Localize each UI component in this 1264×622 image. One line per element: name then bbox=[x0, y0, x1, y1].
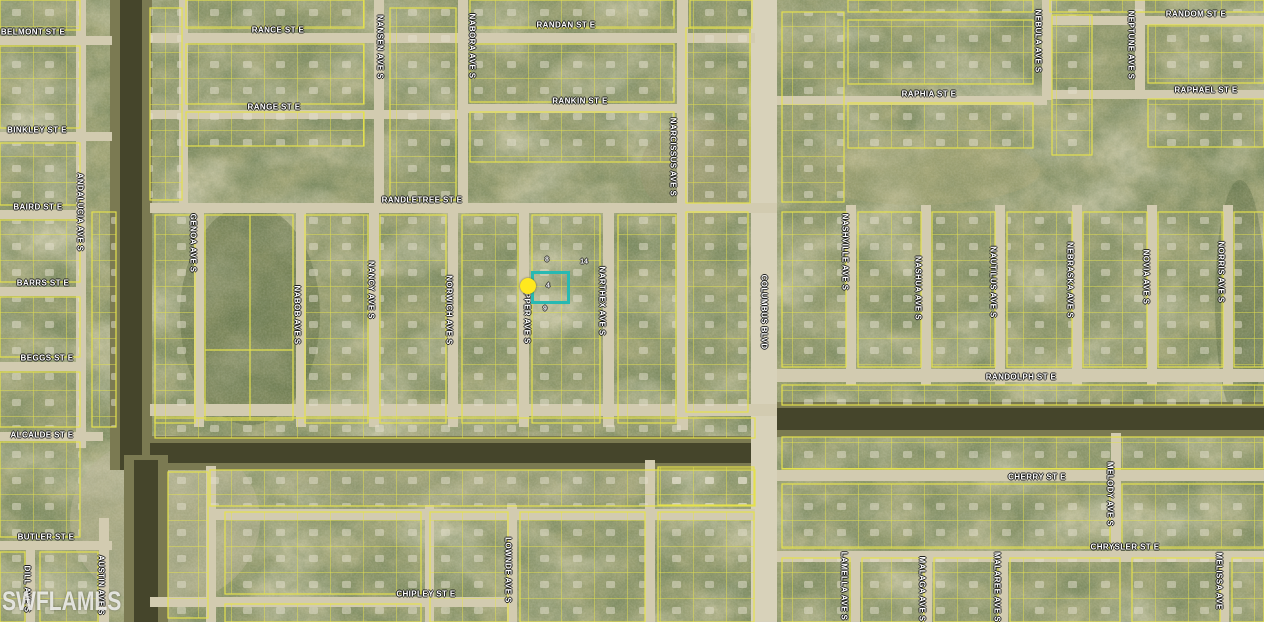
aerial-imagery bbox=[0, 0, 1264, 622]
subject-parcel-marker[interactable] bbox=[520, 278, 536, 294]
map-canvas[interactable]: BELMONT ST ERANCE ST ERANDAN ST ERANDOM … bbox=[0, 0, 1264, 622]
watermark: SWFLAMLS bbox=[2, 586, 121, 617]
subject-parcel-highlight[interactable] bbox=[531, 271, 570, 304]
